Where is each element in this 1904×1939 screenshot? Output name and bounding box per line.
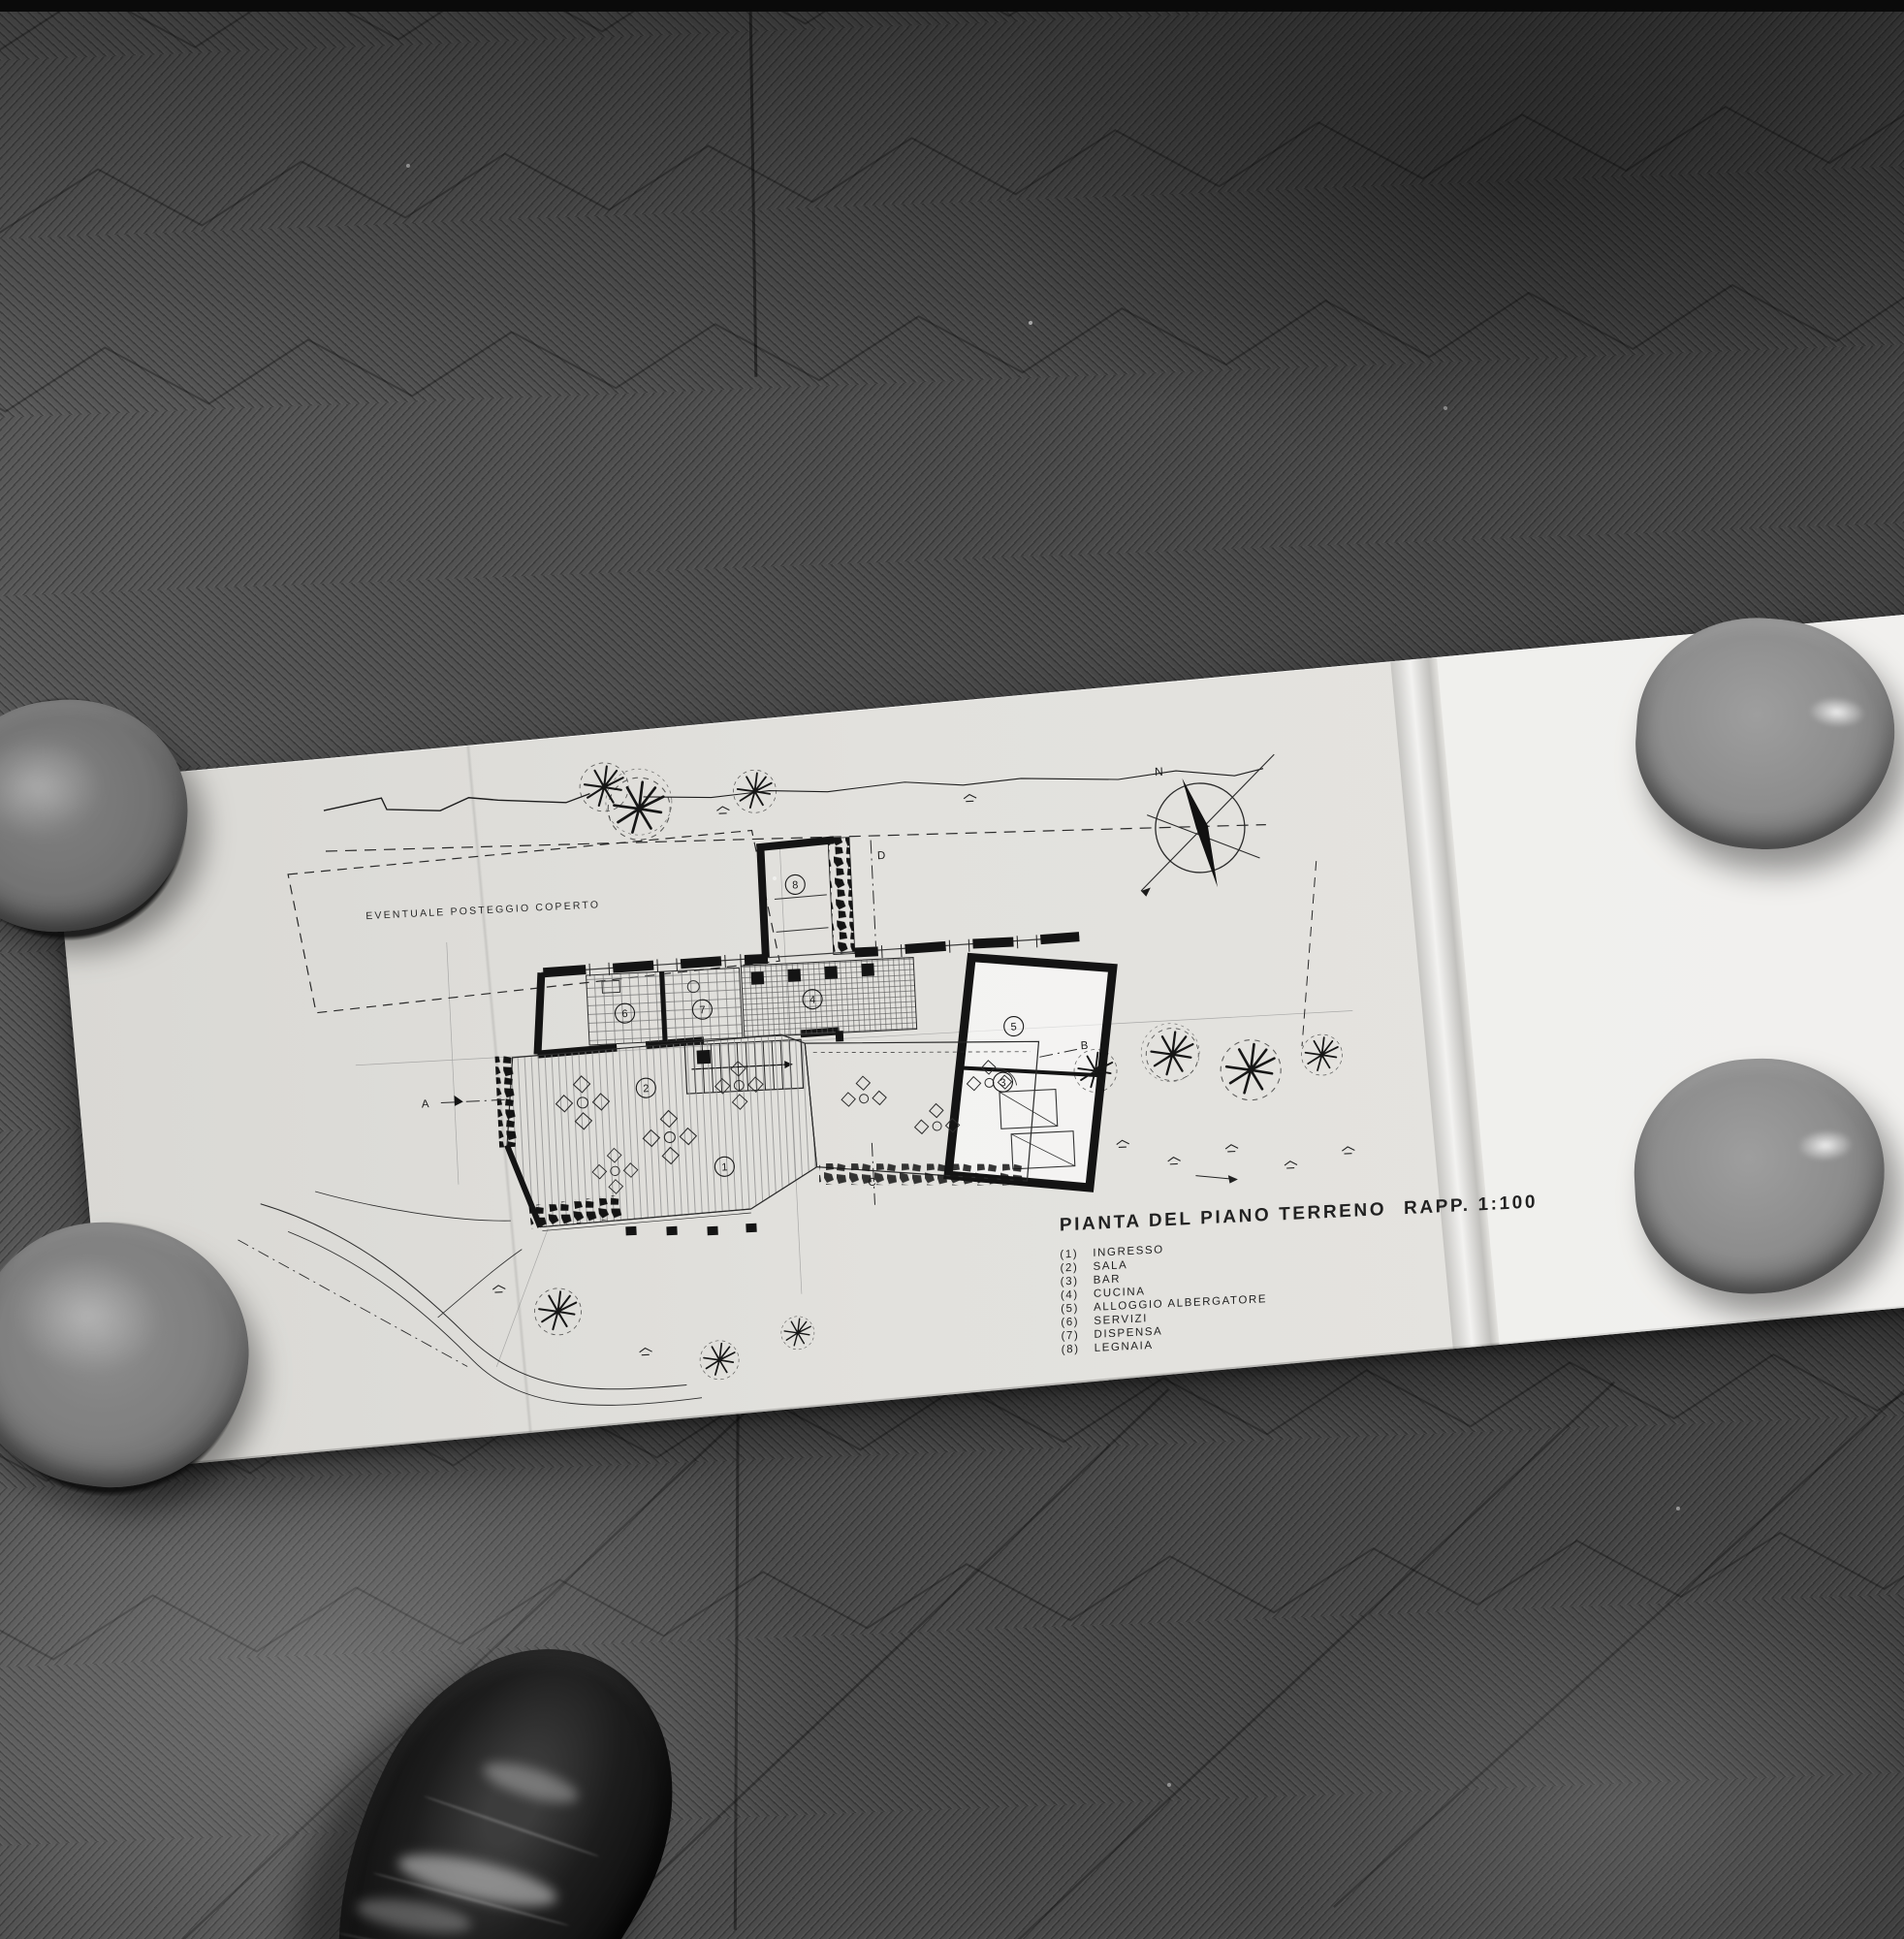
tree-symbols-right <box>1072 1015 1356 1191</box>
section-marker-d: D <box>877 850 886 862</box>
room-number-8: 8 <box>792 879 799 891</box>
north-compass-icon: N <box>1134 754 1281 897</box>
room-number-4: 4 <box>809 995 816 1006</box>
paperweight-bowl-bottom-right <box>1629 1052 1890 1299</box>
title-block: PIANTA DEL PIANO TERRENORAPP. 1:100 (1)I… <box>1060 1195 1469 1357</box>
terrain-sketch-top <box>323 739 1265 850</box>
floor-plan-drawing: EVENTUALE POSTEGGIO COPERTO N <box>147 720 1439 1450</box>
compass-north-label: N <box>1155 765 1163 779</box>
section-marker-b: B <box>1080 1040 1089 1052</box>
section-marker-a: A <box>422 1098 430 1110</box>
site-note-label: EVENTUALE POSTEGGIO COPERTO <box>365 899 601 922</box>
bowl-body <box>1629 1052 1890 1299</box>
photograph-of-floor-plan-on-parquet: EVENTUALE POSTEGGIO COPERTO N <box>0 0 1904 1939</box>
paperweight-bowl-top-left <box>0 687 200 942</box>
paperweight-bowl-bottom-left <box>0 1206 266 1506</box>
room-number-2: 2 <box>643 1083 650 1095</box>
room-number-7: 7 <box>699 1004 706 1016</box>
site-boundary-dashed <box>326 806 1266 871</box>
room-number-6: 6 <box>621 1008 628 1020</box>
paperweight-bowl-top-right <box>1629 610 1902 858</box>
room-number-5: 5 <box>1010 1021 1017 1033</box>
film-frame-edge <box>0 0 1904 12</box>
building-plan <box>485 825 1125 1246</box>
room-number-3: 3 <box>1000 1077 1006 1089</box>
bowl-body <box>1629 610 1902 858</box>
section-marker-c: C <box>868 1177 876 1189</box>
room-legend: (1)INGRESSO (2)SALA (3)BAR (4)CUCINA (5)… <box>1060 1228 1468 1357</box>
room-number-1: 1 <box>721 1161 728 1173</box>
